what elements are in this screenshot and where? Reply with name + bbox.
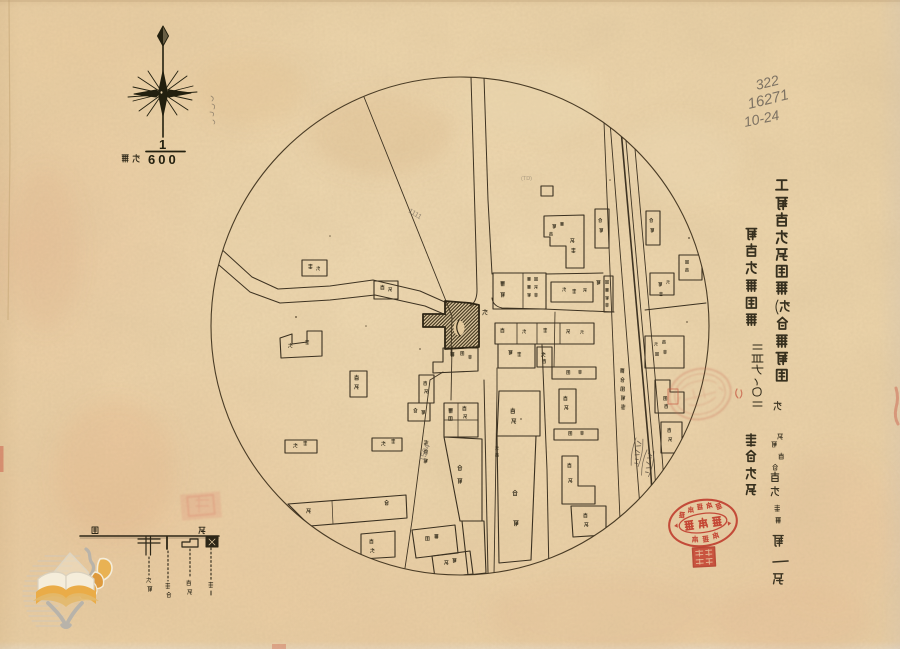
svg-text:(TD): (TD) <box>521 176 532 182</box>
svg-text:600: 600 <box>148 152 179 167</box>
svg-text:1: 1 <box>159 137 166 152</box>
